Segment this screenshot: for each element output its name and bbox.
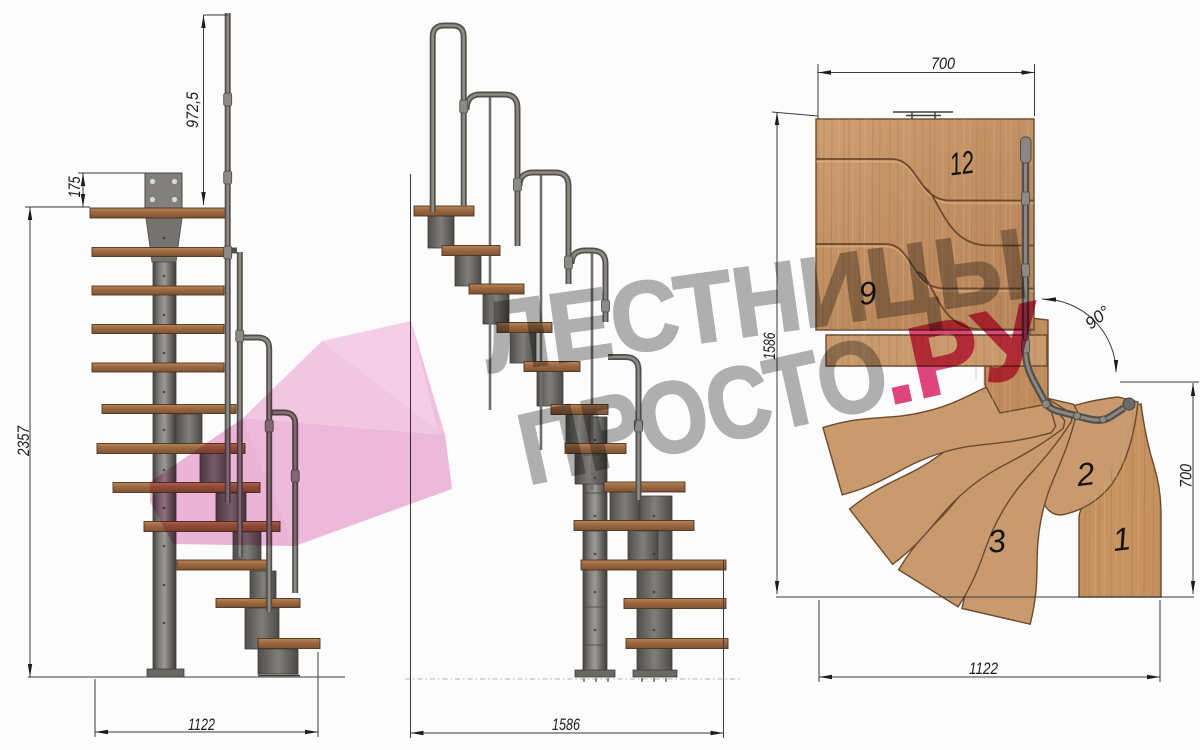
svg-text:90°: 90° [1082,302,1114,333]
svg-text:175: 175 [65,176,84,197]
svg-text:972,5: 972,5 [183,92,202,128]
svg-text:1122: 1122 [188,715,215,734]
svg-text:700: 700 [931,54,955,73]
svg-text:1586: 1586 [552,715,580,734]
svg-text:12: 12 [948,144,976,183]
svg-text:700: 700 [1177,464,1196,488]
svg-text:1122: 1122 [969,659,998,678]
svg-text:2357: 2357 [14,426,33,457]
